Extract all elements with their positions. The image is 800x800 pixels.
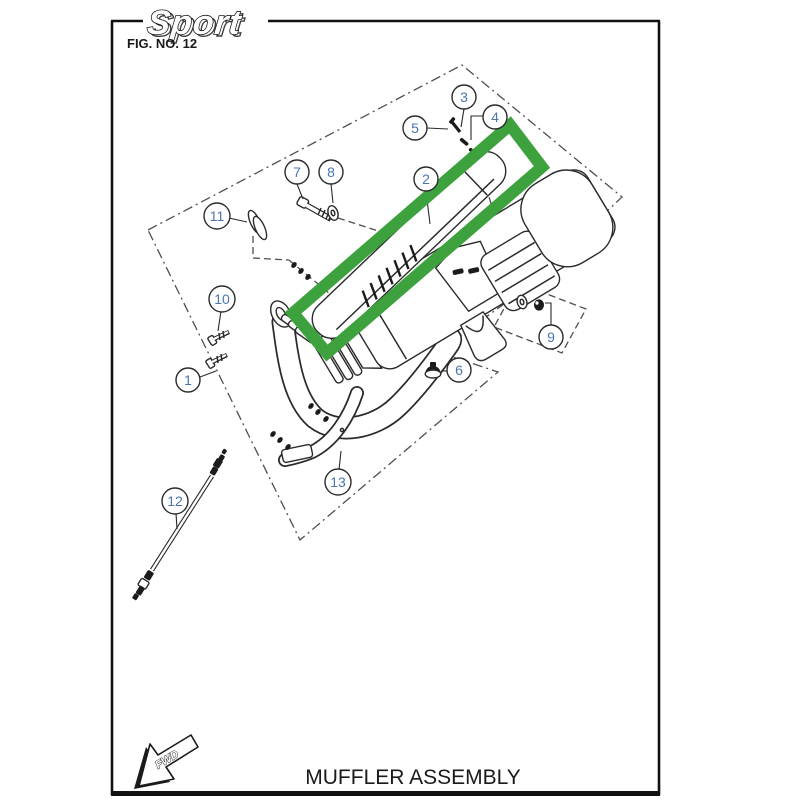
callout-4-number: 4: [491, 109, 499, 125]
callout-11-number: 11: [210, 208, 225, 224]
callout-3: 3: [452, 85, 476, 109]
callout-10-number: 10: [214, 291, 230, 307]
callout-11: 11: [204, 203, 230, 229]
callout-5: 5: [403, 116, 427, 140]
oxygen-sensor: [132, 448, 227, 600]
callout-2-number: 2: [422, 171, 430, 187]
callout-5-number: 5: [411, 120, 419, 136]
callout-6-number: 6: [455, 362, 463, 378]
bolt-part-7: [296, 196, 331, 219]
callout-10: 10: [209, 286, 235, 312]
callout-13: 13: [325, 469, 351, 495]
screws-part-10: [205, 331, 229, 369]
callout-3-number: 3: [460, 89, 468, 105]
callout-6: 6: [447, 358, 471, 382]
header: Sport Sport FIG. NO. 12: [127, 4, 247, 51]
parts-diagram-page: Sport Sport FIG. NO. 12: [0, 0, 800, 800]
callout-8-number: 8: [327, 164, 335, 180]
callout-13-number: 13: [330, 474, 346, 490]
callout-4: 4: [483, 105, 507, 129]
exploded-view: 1 2 3 4 5 6 7: [132, 65, 641, 601]
callout-9: 9: [539, 325, 563, 349]
gasket-part-11: [246, 209, 270, 242]
callout-9-number: 9: [547, 329, 555, 345]
figure-number-label: FIG. NO. 12: [127, 36, 197, 51]
callout-7: 7: [285, 160, 309, 184]
page-title: MUFFLER ASSEMBLY: [305, 766, 521, 789]
callout-2: 2: [414, 167, 438, 191]
fwd-arrow-icon: FWD: [134, 735, 198, 789]
callout-7-number: 7: [293, 164, 301, 180]
callout-8: 8: [319, 160, 343, 184]
screw-part-3: [449, 117, 460, 132]
callout-1: 1: [176, 368, 200, 392]
callout-1-number: 1: [184, 372, 192, 388]
callout-12: 12: [162, 488, 188, 514]
callout-12-number: 12: [167, 493, 183, 509]
footer: FWD MUFFLER ASSEMBLY: [134, 735, 521, 789]
